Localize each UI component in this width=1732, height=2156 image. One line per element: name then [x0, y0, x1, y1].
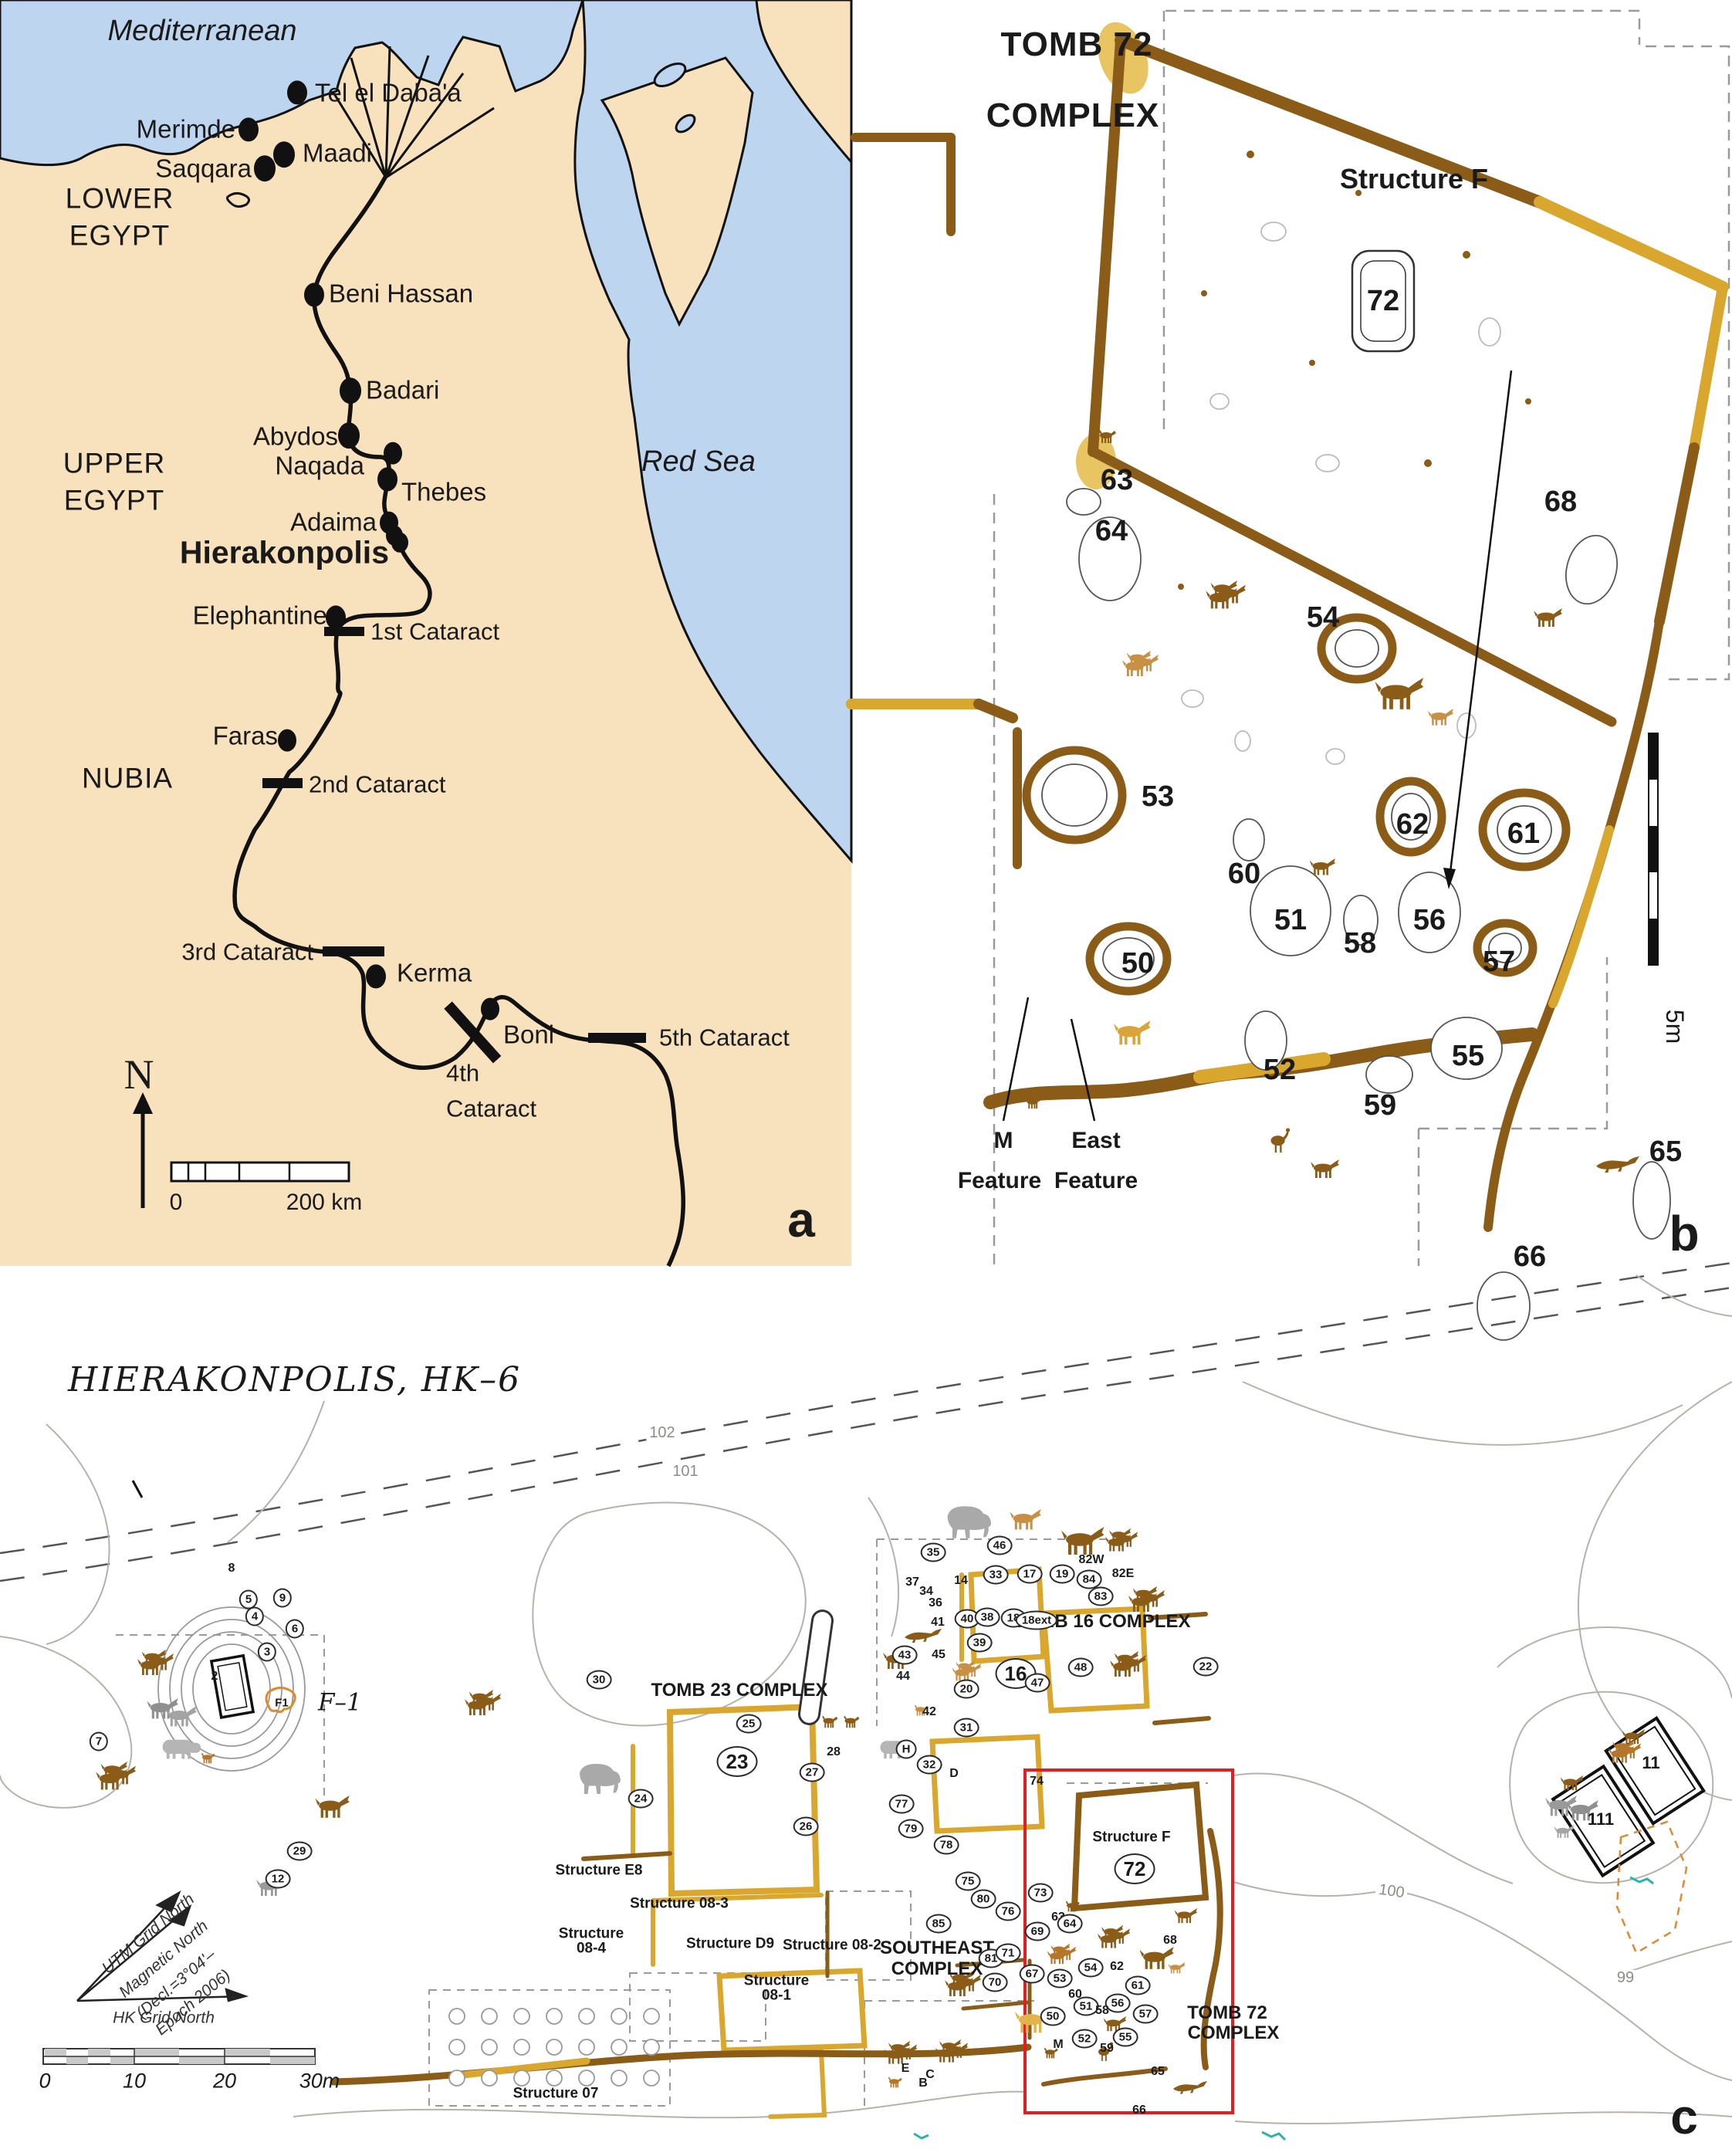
- map-label: 4th: [446, 1061, 479, 1085]
- tomb-number: 67: [1020, 1965, 1045, 1984]
- tomb-number: 14: [954, 1575, 968, 1587]
- map-label: Structure 07: [513, 2087, 599, 2101]
- site-dot: [273, 141, 295, 168]
- tomb-number: 111: [1588, 1811, 1614, 1828]
- contour-101-label: 101: [669, 1464, 701, 1479]
- east-feature-label: Feature: [1054, 1169, 1138, 1193]
- lower-egypt-label: LOWER: [66, 184, 174, 213]
- panel-a-letter: a: [787, 1195, 815, 1244]
- site-dot: [304, 283, 324, 306]
- tomb-number: 28: [827, 1746, 841, 1758]
- tomb-number: 54: [1078, 1958, 1104, 1978]
- tomb-number: 31: [954, 1718, 979, 1738]
- tomb-number: 63: [1101, 465, 1133, 495]
- tomb-number: 58: [1095, 2005, 1109, 2017]
- upper-egypt-label: UPPER: [63, 449, 165, 478]
- tomb-number: 43: [892, 1646, 918, 1665]
- contour-100-label: 100: [1375, 1881, 1409, 1901]
- tomb-number: 60: [1228, 859, 1260, 888]
- tomb-number: 52: [1263, 1055, 1296, 1085]
- tomb-number: 19: [1050, 1565, 1075, 1584]
- m-feature-label: Feature: [958, 1169, 1041, 1193]
- tomb-number: 58: [1344, 929, 1376, 958]
- southeast-complex-label: SOUTHEAST: [880, 1939, 994, 1958]
- tomb-number: 55: [1452, 1041, 1484, 1071]
- site-dot: [391, 533, 408, 553]
- tomb-number: F1: [275, 1697, 289, 1709]
- map-label: 2nd Cataract: [309, 773, 446, 797]
- tomb-number: 79: [898, 1819, 924, 1839]
- panel-b-letter: b: [1669, 1209, 1699, 1258]
- tomb-number: 70: [983, 1973, 1008, 1992]
- tomb-number: 52: [1072, 2029, 1098, 2049]
- north-compass-label: N: [124, 1054, 154, 1095]
- tomb-number: 76: [996, 1902, 1021, 1921]
- site-dot: [366, 964, 386, 988]
- tomb-number: 66: [1132, 2104, 1146, 2117]
- map-label: Structure: [559, 1927, 624, 1941]
- site-dot: [340, 377, 361, 404]
- tomb-number: 68: [1544, 487, 1577, 516]
- tomb-number: 59: [1100, 2043, 1114, 2055]
- tomb-number: 53: [1047, 1969, 1073, 1988]
- tomb-number: 4: [245, 1607, 264, 1626]
- tomb-number: 38: [975, 1608, 1000, 1627]
- site-dot: [254, 155, 276, 181]
- tomb-number: H: [896, 1740, 917, 1759]
- tomb-number: 78: [934, 1836, 959, 1855]
- map-label: Adaima: [290, 509, 377, 535]
- tomb-number: 62: [1396, 810, 1429, 839]
- tomb-number: 56: [1413, 905, 1446, 935]
- tomb-number: 75: [956, 1872, 981, 1891]
- site-dot: [338, 422, 360, 448]
- contour-99-label: 99: [1614, 1970, 1637, 1985]
- map-label: 08-4: [577, 1941, 606, 1956]
- tomb-number: 23: [717, 1746, 758, 1777]
- tomb-number: 61: [1125, 1976, 1151, 1995]
- tomb-number: 42: [922, 1706, 936, 1718]
- tomb-number: 68: [1163, 1934, 1177, 1947]
- tomb-number: 30: [587, 1670, 612, 1690]
- tomb-number: 18ext: [1016, 1611, 1057, 1630]
- map-label: Thebes: [401, 479, 486, 505]
- map-label: 20: [213, 2071, 236, 2092]
- nubia-label: NUBIA: [82, 764, 173, 793]
- tomb-number: 72: [1367, 286, 1399, 316]
- map-label: 10: [123, 2071, 146, 2092]
- southeast-complex-label: COMPLEX: [891, 1960, 983, 1978]
- tomb-number: 72: [1115, 1853, 1155, 1884]
- map-label: Tel el Daba'a: [315, 80, 462, 106]
- east-feature-label: East: [1071, 1129, 1120, 1152]
- map-label: Structure E8: [556, 1863, 643, 1878]
- tomb-number: 59: [1364, 1091, 1396, 1120]
- map-label: Beni Hassan: [329, 281, 473, 306]
- tomb-number: M: [1053, 2039, 1063, 2051]
- hk-grid-north-label: HK Grid North: [113, 2010, 215, 2026]
- tomb-number: 65: [1649, 1137, 1682, 1166]
- labels-layer: MediterraneanRed SeaLOWEREGYPTUPPEREGYPT…: [0, 0, 1732, 2156]
- tomb-number: 25: [736, 1714, 762, 1734]
- panel-b-title: TOMB 72: [1001, 28, 1153, 62]
- tomb-number: 64: [1095, 516, 1128, 546]
- tomb-number: 54: [1307, 603, 1339, 632]
- map-label: 1st Cataract: [370, 620, 499, 644]
- tomb-number: 66: [1514, 1242, 1546, 1271]
- map-label: 08-1: [762, 1988, 791, 2003]
- map-label: Structure F: [1092, 1830, 1170, 1845]
- tomb-number: 64: [1057, 1914, 1083, 1934]
- tomb-number: 83: [1088, 1587, 1114, 1606]
- scale-5m-label: 5m: [1663, 1010, 1687, 1044]
- hierakonpolis-label: Hierakonpolis: [180, 537, 389, 569]
- tomb-number: 39: [967, 1633, 993, 1653]
- map-label: 0: [39, 2071, 50, 2092]
- tomb-number: 41: [931, 1616, 945, 1629]
- tomb-number: 80: [971, 1890, 996, 1909]
- site-dot: [384, 442, 402, 465]
- tomb-72-complex-label: COMPLEX: [1188, 2024, 1280, 2043]
- tomb-number: 69: [1025, 1922, 1050, 1941]
- map-label: 5th Cataract: [659, 1026, 790, 1050]
- upper-egypt-label: EGYPT: [64, 486, 164, 515]
- tomb-number: 61: [1507, 819, 1540, 848]
- tomb-number: 85: [926, 1914, 952, 1934]
- tomb-number: 37: [905, 1576, 919, 1589]
- map-label: Merimde: [137, 117, 235, 142]
- map-label: Cataract: [446, 1097, 536, 1121]
- map-label: Structure D9: [686, 1937, 774, 1951]
- tomb-number: 46: [987, 1536, 1013, 1555]
- tomb-number: 2: [211, 1670, 218, 1683]
- tomb-number: 11: [1642, 1755, 1659, 1772]
- tomb-72-complex-label: TOMB 72: [1187, 2004, 1267, 2022]
- map-label: Structure 08-2: [783, 1938, 881, 1953]
- map-label: Elephantine: [193, 603, 327, 628]
- tomb-number: 20: [954, 1680, 979, 1699]
- panel-c-letter: c: [1670, 2092, 1698, 2141]
- tomb-number: 47: [1025, 1674, 1050, 1693]
- tomb-number: 17: [1017, 1565, 1043, 1584]
- tomb-number: 62: [1110, 1961, 1124, 1973]
- tomb-number: 33: [983, 1565, 1009, 1585]
- tomb-number: 3: [258, 1643, 276, 1662]
- panel-b-title: COMPLEX: [986, 99, 1160, 133]
- tomb-number: 12: [266, 1870, 291, 1889]
- m-feature-label: M: [994, 1129, 1013, 1152]
- site-dot: [377, 467, 397, 491]
- tomb-number: 50: [1040, 2007, 1066, 2026]
- tomb-number: 74: [1030, 1775, 1044, 1788]
- mediterranean-label: Mediterranean: [107, 16, 296, 46]
- site-dot: [238, 117, 259, 141]
- tomb-number: 35: [921, 1543, 946, 1562]
- contour-102-label: 102: [646, 1425, 678, 1440]
- tomb-number: 53: [1142, 782, 1174, 811]
- map-label: Faras: [213, 723, 278, 749]
- structure-f-label: Structure F: [1340, 165, 1488, 193]
- tomb-number: 82W: [1079, 1554, 1104, 1566]
- lower-egypt-label: EGYPT: [69, 222, 170, 250]
- tomb-number: D: [949, 1768, 959, 1780]
- tomb-number: 32: [917, 1755, 942, 1775]
- tomb-number: 22: [1193, 1657, 1219, 1677]
- map-label: 30m: [299, 2071, 340, 2092]
- tomb-number: 6: [286, 1620, 304, 1639]
- map-label: 3rd Cataract: [181, 940, 313, 964]
- tomb-number: 45: [932, 1649, 945, 1661]
- map-label: Structure: [744, 1974, 809, 1988]
- tomb-number: 71: [996, 1944, 1021, 1963]
- tomb-number: 82E: [1112, 1568, 1134, 1580]
- tomb-number: 57: [1133, 2005, 1159, 2024]
- tomb-number: 73: [1028, 1884, 1054, 1903]
- map-label: Boni: [503, 1022, 554, 1048]
- site-dot: [481, 998, 499, 1020]
- map-label: Saqqara: [155, 156, 252, 181]
- tomb-number: 57: [1483, 947, 1515, 976]
- red-sea-label: Red Sea: [641, 447, 756, 476]
- tomb-23-complex-label: TOMB 23 COMPLEX: [651, 1681, 828, 1700]
- map-label: Kerma: [397, 960, 472, 986]
- tomb-number: 29: [287, 1842, 313, 1861]
- map-label: Structure 08-3: [630, 1897, 729, 1911]
- scale-zero-label: 0: [170, 1191, 183, 1214]
- tomb-number: 65: [1151, 2066, 1165, 2078]
- site-dot: [326, 605, 346, 629]
- tomb-number: 7: [90, 1732, 108, 1752]
- map-label: Badari: [366, 377, 439, 403]
- tomb-number: 9: [273, 1589, 292, 1608]
- tomb-number: E: [902, 2063, 910, 2075]
- tomb-number: B: [918, 2077, 928, 2090]
- tomb-number: 50: [1121, 949, 1154, 978]
- tomb-number: 24: [628, 1789, 654, 1809]
- site-dot: [287, 80, 307, 104]
- tomb-number: 48: [1068, 1658, 1094, 1677]
- scale-200km-label: 200 km: [286, 1191, 362, 1214]
- figure-page: MediterraneanRed SeaLOWEREGYPTUPPEREGYPT…: [0, 0, 1732, 2156]
- map-label: Naqada: [275, 453, 364, 479]
- f1-feature-label: F–1: [318, 1691, 362, 1715]
- tomb-number: 27: [800, 1763, 825, 1782]
- tomb-number: 36: [929, 1597, 942, 1609]
- tomb-number: 8: [228, 1562, 235, 1575]
- panel-c-title: HIERAKONPOLIS, HK–6: [68, 1363, 521, 1397]
- tomb-number: 77: [889, 1795, 915, 1814]
- map-label: Maadi: [303, 140, 372, 166]
- tomb-number: 26: [793, 1817, 819, 1836]
- tomb-number: 51: [1274, 905, 1307, 935]
- map-label: Abydos: [253, 424, 338, 449]
- site-dot: [278, 729, 296, 752]
- tomb-number: 44: [896, 1670, 910, 1683]
- tomb-number: 55: [1113, 2028, 1138, 2047]
